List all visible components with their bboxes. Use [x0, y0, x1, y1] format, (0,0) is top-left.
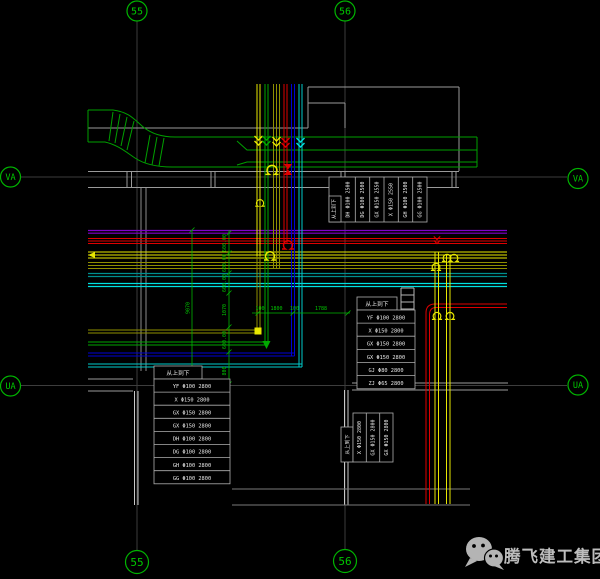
riser-valve-icon	[432, 312, 442, 319]
table-cell: DG Φ100 2500	[360, 181, 366, 217]
dim-label: 1788	[315, 306, 327, 312]
table-cell: DH Φ100 2500	[346, 181, 352, 217]
grid-label: 55	[130, 556, 143, 569]
cyan-pipes	[88, 284, 507, 287]
table-row: X Φ150 2800	[174, 397, 209, 403]
horizontal-pipes	[88, 231, 507, 287]
table-row: ZJ Φ65 2800	[368, 381, 403, 387]
flow-marker-icon	[297, 138, 305, 147]
grid-label: VA	[573, 175, 583, 185]
table-row: X Φ150 2800	[368, 329, 403, 335]
cad-drawing-canvas: 100 1800 100 1788 600.00 600.00 600.00 1…	[0, 0, 600, 579]
table-row: GX Φ150 2800	[367, 342, 405, 348]
table-header: 从上到下	[166, 369, 189, 377]
table-row: YF Φ100 2800	[367, 315, 405, 321]
pipe-corner-marker	[255, 328, 262, 335]
wechat-icon	[465, 537, 504, 570]
grid-label: 56	[339, 7, 351, 18]
pipe-table-right: 从上到下 YF Φ100 2800 X Φ150 2800 GX Φ150 28…	[357, 297, 415, 389]
yellow-risers	[435, 252, 450, 504]
table-header: 从上到下	[365, 300, 388, 308]
riser-valve-icon	[431, 263, 441, 270]
table-row: DH Φ100 2800	[173, 437, 211, 443]
purple-pipe	[88, 231, 507, 234]
table-cell: GX Φ150 2800	[384, 419, 390, 455]
valve-icon	[284, 164, 292, 175]
table-row: DG Φ100 2800	[173, 450, 211, 456]
table-header: 从上到下	[331, 199, 338, 219]
red-pipes	[88, 239, 507, 244]
table-cell: GH Φ100 2500	[403, 181, 409, 217]
flow-marker-icon	[434, 236, 440, 243]
dim-label: 1070	[222, 304, 228, 316]
cad-plan-svg: 100 1800 100 1788 600.00 600.00 600.00 1…	[0, 0, 600, 579]
table-cell: GG Φ100 2500	[417, 181, 423, 217]
dim-label: 100	[255, 306, 264, 312]
dim-label: 600.00	[222, 331, 228, 349]
dim-label: 600.00	[222, 274, 228, 292]
table-row: GH Φ100 2800	[173, 463, 211, 469]
flow-marker-icon	[282, 138, 290, 147]
table-row: GG Φ100 2800	[173, 476, 211, 482]
table-row: YF Φ100 2800	[173, 384, 211, 390]
dim-label: 600.00	[222, 254, 228, 272]
table-cell: GX Φ150 2550	[374, 181, 380, 217]
grid-label: 56	[338, 555, 351, 568]
table-cell: X Φ150 2800	[357, 421, 363, 454]
dim-label: 1800	[270, 306, 282, 312]
right-risers	[426, 252, 507, 504]
dim-label: 9070	[186, 302, 192, 314]
grid-label: UA	[5, 382, 15, 392]
grid-label: 55	[131, 7, 143, 18]
left-bend-pipes	[88, 328, 302, 368]
grid-label: UA	[573, 381, 583, 391]
riser-valve-icon	[264, 252, 276, 260]
dim-label: 600.00	[222, 234, 228, 252]
table-row: GJ Φ80 2800	[368, 368, 403, 374]
table-row: GX Φ150 2800	[173, 424, 211, 430]
table-header: 从上到下	[344, 434, 351, 454]
arrow-icon	[88, 252, 95, 258]
table-cell: X Φ150 2550	[389, 183, 395, 216]
pipe-table-bottom-left: 从上到下 YF Φ100 2800 X Φ150 2800 GX Φ150 28…	[154, 366, 230, 484]
table-row: GX Φ150 2800	[367, 355, 405, 361]
table-row: GX Φ150 2800	[173, 410, 211, 416]
teal-pipes	[88, 274, 507, 277]
pipe-table-top-right: 从上到下 DH Φ100 2500 DG Φ100 2500 GX Φ150 2…	[329, 177, 427, 222]
pipe-table-bottom-center: 从上到下 X Φ150 2800 GX Φ150 2800 GX Φ150 28…	[341, 413, 393, 462]
table-cell: GX Φ150 2800	[371, 419, 377, 455]
watermark-company-name: 腾飞建工集团	[504, 546, 600, 566]
axis-grid-lines	[21, 21, 568, 550]
dim-label: 100	[290, 306, 299, 312]
dim-label: 800	[222, 366, 228, 375]
watermark: 腾飞建工集团	[465, 537, 600, 570]
olive-pipes	[88, 263, 507, 269]
grid-label: VA	[5, 173, 15, 183]
vertical-pipes-top	[257, 84, 302, 367]
